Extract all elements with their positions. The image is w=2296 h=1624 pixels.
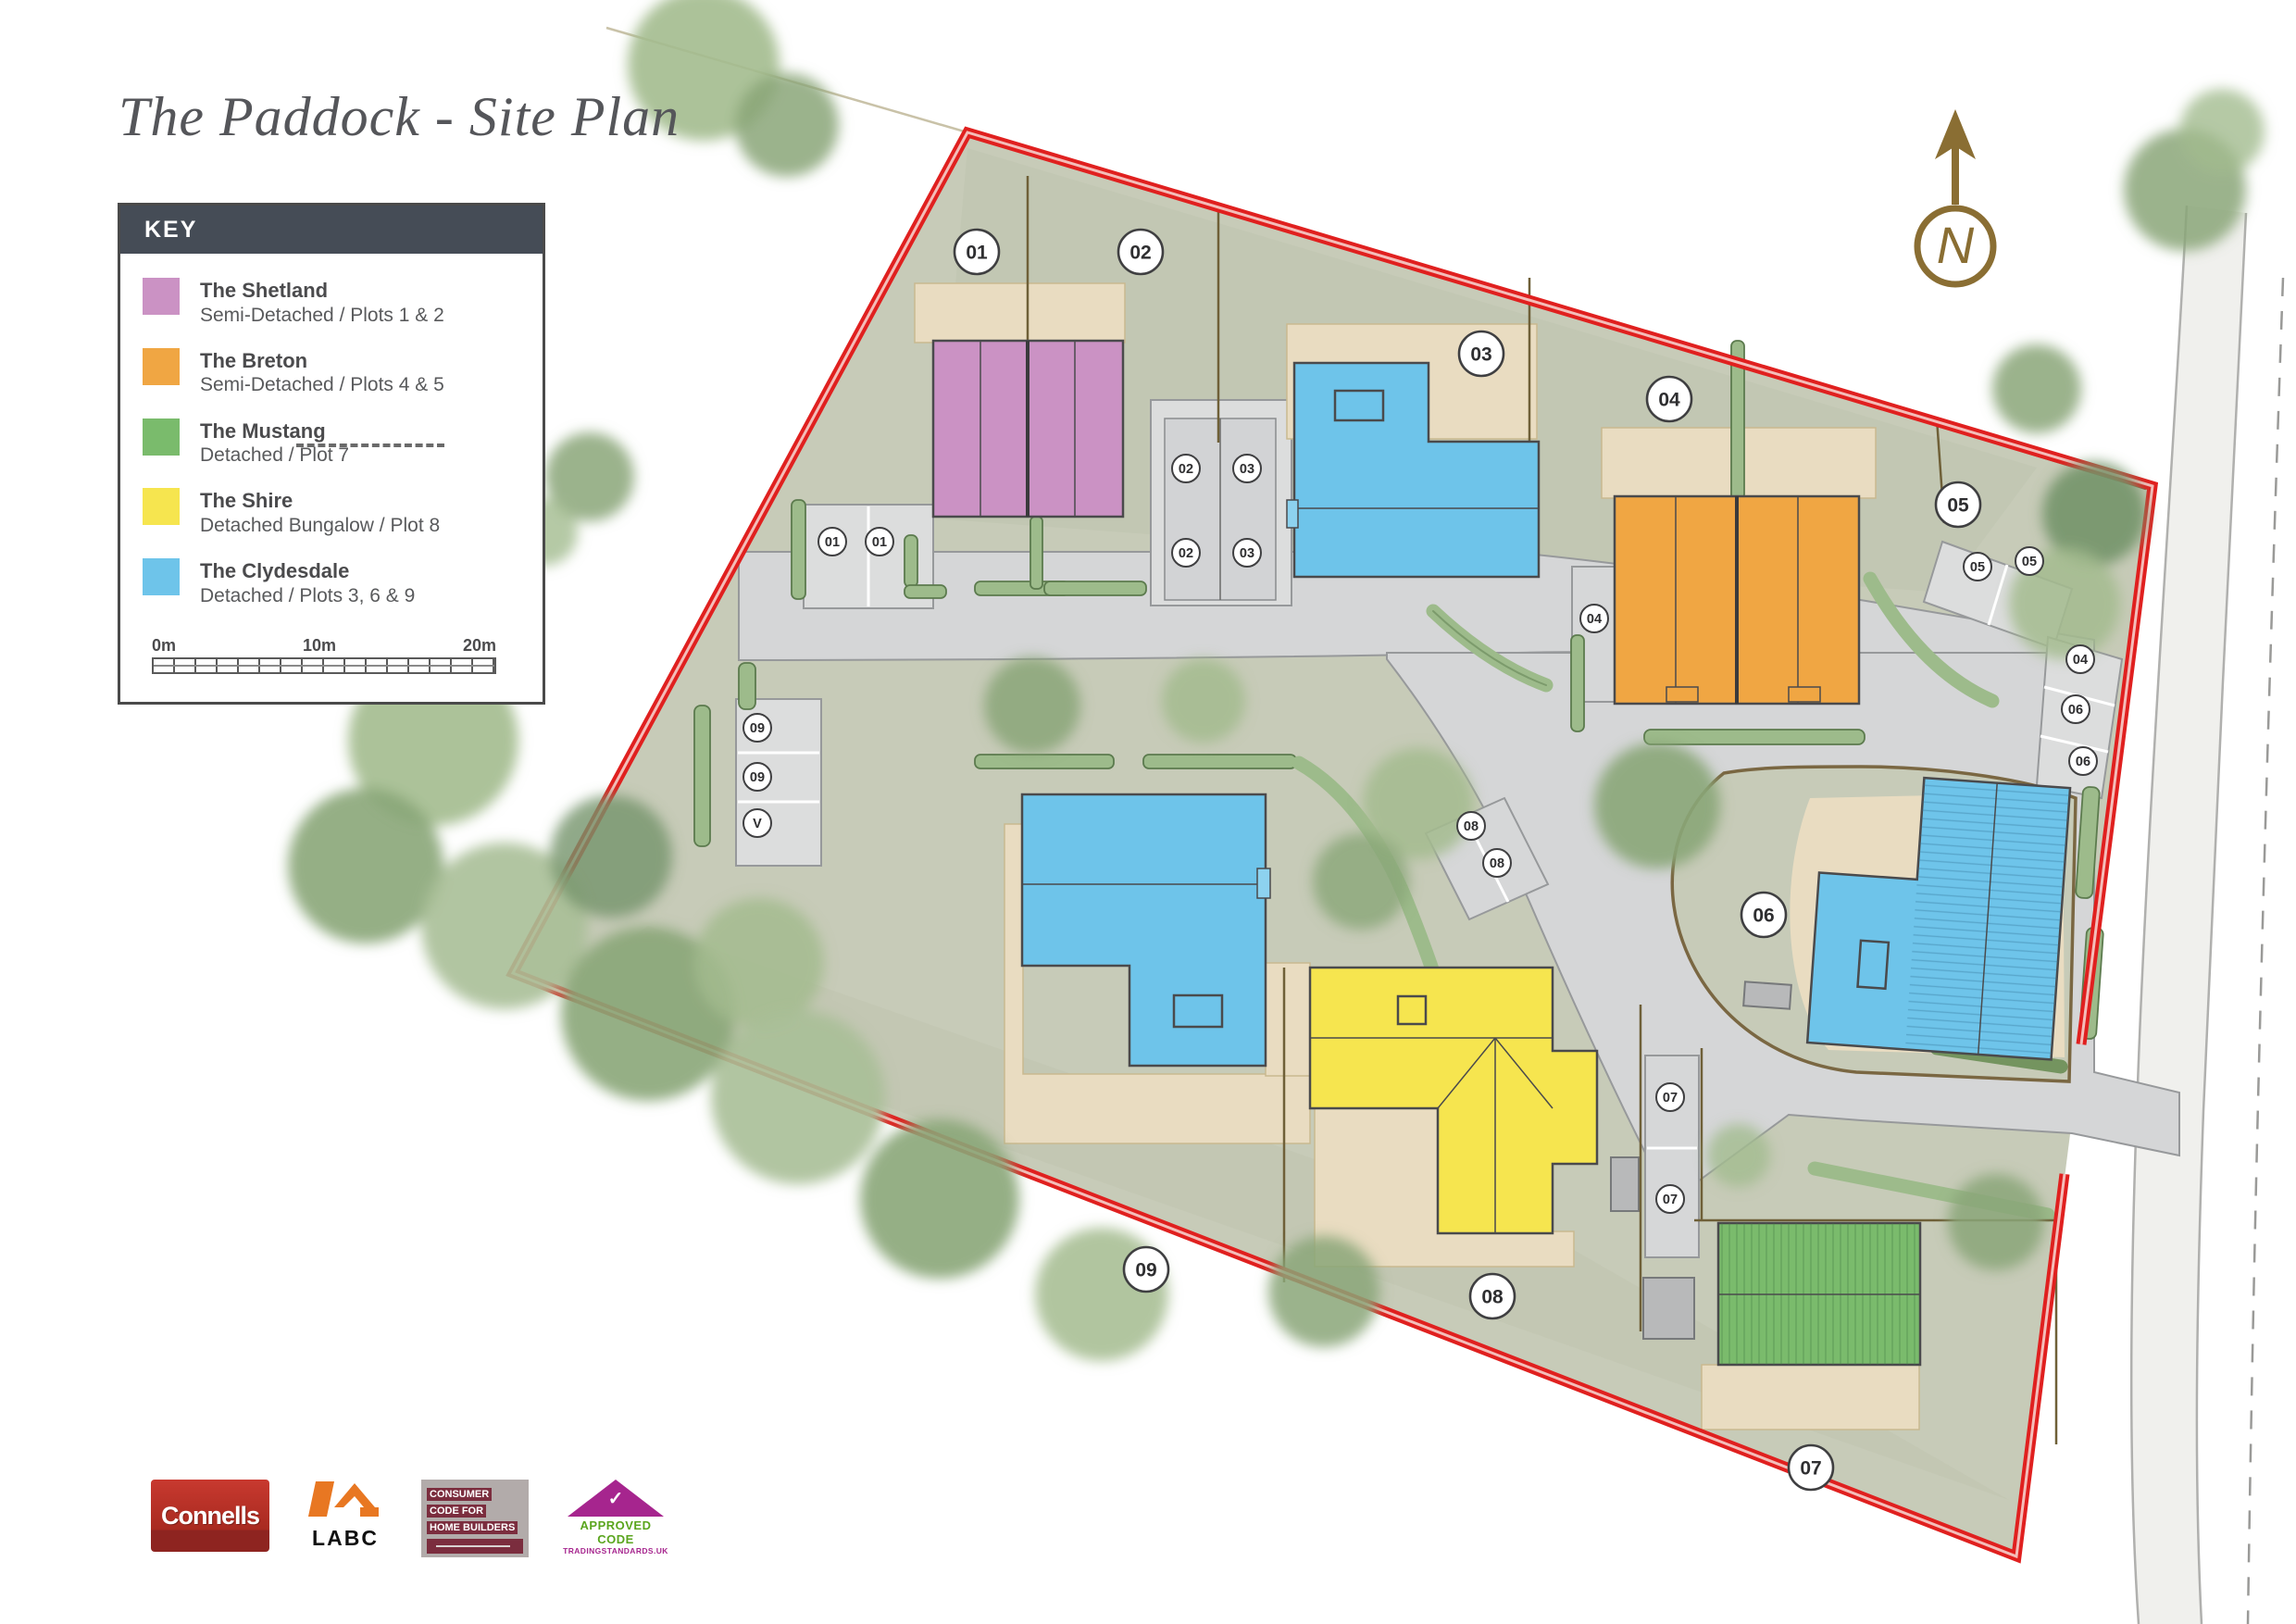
building-breton-plots-4-5 [1615, 496, 1859, 704]
parking-space-marker: 02 [1172, 539, 1200, 567]
svg-text:08: 08 [1464, 819, 1479, 834]
clydesdale-swatch [143, 558, 180, 595]
legend-name: The Breton [200, 348, 444, 374]
scale-0m: 0m [152, 636, 176, 656]
plot-number-marker: 02 [1118, 230, 1163, 274]
svg-text:01: 01 [966, 243, 988, 264]
legend-name: The Clydesdale [200, 558, 415, 584]
plot-number-marker: 03 [1459, 331, 1504, 376]
parking-space-marker: V [743, 809, 771, 837]
svg-text:09: 09 [750, 721, 765, 736]
parking-space-marker: 08 [1483, 849, 1511, 877]
building-mustang-plot-7 [1718, 1223, 1920, 1365]
shire-swatch [143, 488, 180, 525]
plot-number-marker: 06 [1741, 893, 1786, 937]
compass-n-label: N [1937, 216, 1975, 274]
svg-text:08: 08 [1481, 1287, 1504, 1308]
svg-text:01: 01 [872, 535, 887, 550]
mustang-swatch [143, 418, 180, 456]
site-plan-page: 0102030405060708090101020302030405050406… [0, 0, 2296, 1624]
parking-space-marker: 04 [1580, 605, 1608, 632]
parking-space-marker: 01 [818, 528, 846, 556]
legend-name: The Shetland [200, 278, 444, 304]
scale-10m: 10m [303, 636, 336, 656]
key-header: KEY [120, 206, 543, 254]
parking-space-marker: 01 [866, 528, 893, 556]
parking-space-marker: 08 [1457, 812, 1485, 840]
scale-bar: 0m 10m 20m [152, 636, 496, 674]
parking-space-marker: 06 [2069, 747, 2097, 775]
legend-name: The Mustang [200, 418, 349, 444]
svg-text:06: 06 [1753, 906, 1774, 927]
svg-text:01: 01 [825, 535, 840, 550]
parking-space-marker: 06 [2062, 695, 2090, 723]
scale-ruler [152, 657, 496, 674]
labc-house-icon [306, 1480, 384, 1528]
approved-code-logo: ✓ APPROVED CODE TRADINGSTANDARDS.UK [560, 1480, 671, 1563]
svg-text:05: 05 [1947, 495, 1969, 517]
plot-number-marker: 08 [1470, 1274, 1515, 1318]
svg-text:05: 05 [1970, 560, 1985, 575]
svg-text:06: 06 [2068, 703, 2083, 718]
legend-item-shire: The Shire Detached Bungalow / Plot 8 [143, 488, 520, 538]
parking-space-marker: 05 [1964, 553, 1991, 581]
svg-text:07: 07 [1663, 1193, 1678, 1207]
svg-text:07: 07 [1663, 1091, 1678, 1106]
consumer-code-logo: CONSUMER CODE FOR HOME BUILDERS [421, 1480, 529, 1557]
plot-number-marker: 05 [1936, 482, 1980, 527]
key-legend: KEY The Shetland Semi-Detached / Plots 1… [118, 203, 545, 705]
svg-text:02: 02 [1179, 462, 1193, 477]
consumer-code-bar [427, 1539, 523, 1554]
plot-number-marker: 04 [1647, 377, 1691, 421]
svg-text:V: V [753, 817, 762, 831]
svg-text:08: 08 [1490, 856, 1504, 871]
shetland-swatch [143, 278, 180, 315]
legend-name: The Shire [200, 488, 440, 514]
page-title: The Paddock - Site Plan [119, 85, 680, 149]
consumer-code-line: CONSUMER [427, 1488, 492, 1501]
parking-space-marker: 03 [1233, 539, 1261, 567]
parking-space-marker: 05 [2015, 547, 2043, 575]
check-icon: ✓ [608, 1487, 624, 1510]
legend-desc: Semi-Detached / Plots 4 & 5 [200, 373, 444, 397]
legend-item-clydesdale: The Clydesdale Detached / Plots 3, 6 & 9 [143, 558, 520, 608]
legend-desc: Detached / Plots 3, 6 & 9 [200, 584, 415, 608]
svg-text:02: 02 [1179, 546, 1193, 561]
scale-dashes [296, 443, 444, 447]
approved-code-roof-icon: ✓ [568, 1480, 664, 1517]
svg-text:03: 03 [1240, 546, 1254, 561]
svg-text:04: 04 [1587, 612, 1602, 627]
svg-text:09: 09 [1135, 1260, 1156, 1281]
parking-space-marker: 09 [743, 714, 771, 742]
svg-text:04: 04 [1658, 390, 1680, 411]
parking-space-marker: 07 [1656, 1185, 1684, 1213]
north-compass: N [1917, 109, 1993, 284]
parking-space-marker: 03 [1233, 455, 1261, 482]
svg-text:06: 06 [2076, 755, 2090, 769]
svg-text:05: 05 [2022, 555, 2037, 569]
svg-text:07: 07 [1800, 1458, 1821, 1480]
plot-number-marker: 01 [955, 230, 999, 274]
legend-item-shetland: The Shetland Semi-Detached / Plots 1 & 2 [143, 278, 520, 328]
building-shetland-plots-1-2 [933, 341, 1123, 517]
scale-20m: 20m [463, 636, 496, 656]
legend-item-breton: The Breton Semi-Detached / Plots 4 & 5 [143, 348, 520, 398]
parking-space-marker: 07 [1656, 1083, 1684, 1111]
svg-text:09: 09 [750, 770, 765, 785]
svg-text:04: 04 [2073, 653, 2088, 668]
consumer-code-line: CODE FOR [427, 1505, 486, 1518]
breton-swatch [143, 348, 180, 385]
plot-number-marker: 09 [1124, 1247, 1168, 1292]
plot-number-marker: 07 [1789, 1445, 1833, 1490]
svg-text:03: 03 [1240, 462, 1254, 477]
parking-space-marker: 02 [1172, 455, 1200, 482]
legend-desc: Detached Bungalow / Plot 8 [200, 514, 440, 538]
svg-text:03: 03 [1470, 344, 1491, 366]
trading-standards-text: TRADINGSTANDARDS.UK [560, 1546, 671, 1555]
parking-space-marker: 09 [743, 763, 771, 791]
legend-desc: Semi-Detached / Plots 1 & 2 [200, 304, 444, 328]
connells-logo-text: Connells [161, 1502, 259, 1530]
approved-code-text: APPROVED CODE [560, 1518, 671, 1546]
labc-logo-text: LABC [301, 1526, 390, 1551]
connells-logo: Connells [151, 1480, 269, 1552]
logo-strip: Connells LABC CONSUMER CODE FOR HOME BUI… [151, 1480, 671, 1563]
labc-logo: LABC [301, 1480, 390, 1554]
svg-text:02: 02 [1129, 243, 1151, 264]
parking-space-marker: 04 [2066, 645, 2094, 673]
consumer-code-line: HOME BUILDERS [427, 1521, 518, 1534]
